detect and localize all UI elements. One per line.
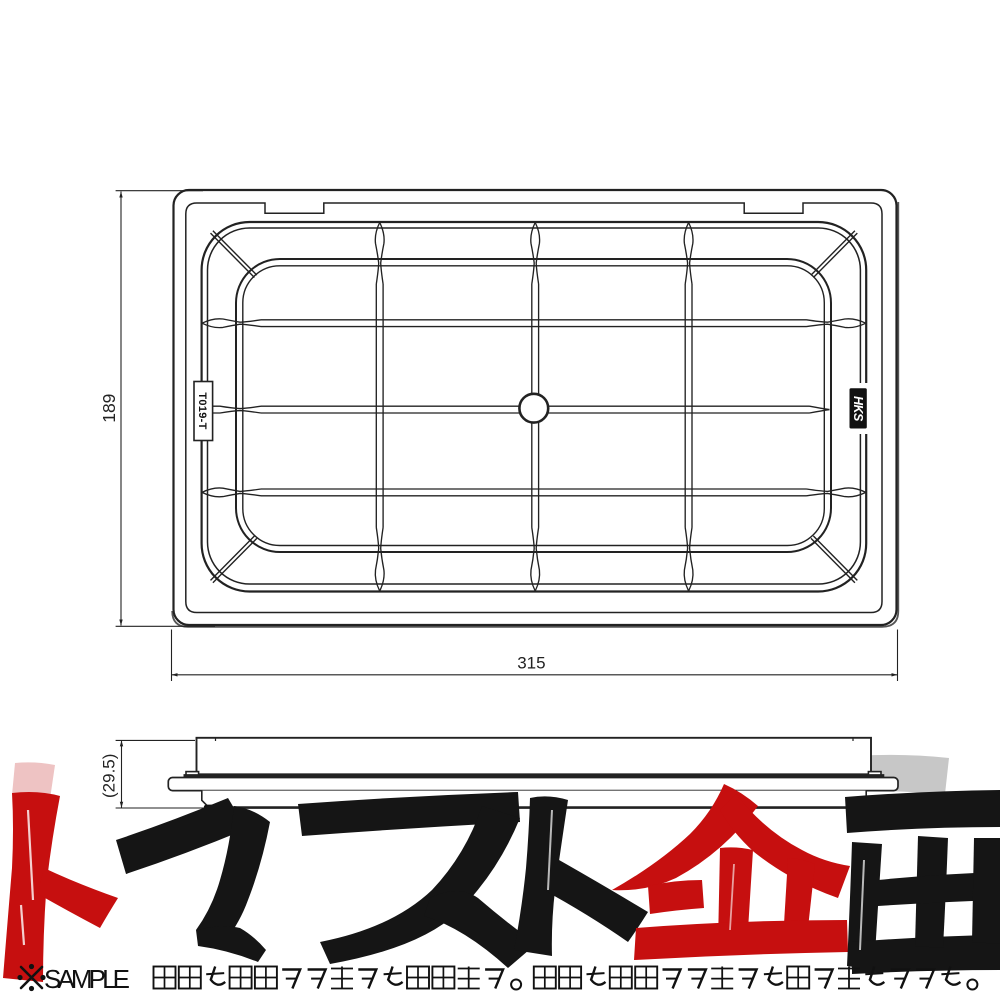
svg-text:SAMPLE: SAMPLE bbox=[44, 964, 130, 994]
svg-text:189: 189 bbox=[99, 394, 119, 423]
svg-text:315: 315 bbox=[517, 653, 545, 672]
svg-text:(29.5): (29.5) bbox=[100, 754, 119, 798]
svg-text:HKS: HKS bbox=[851, 396, 865, 422]
svg-text:T019-T: T019-T bbox=[196, 392, 208, 429]
